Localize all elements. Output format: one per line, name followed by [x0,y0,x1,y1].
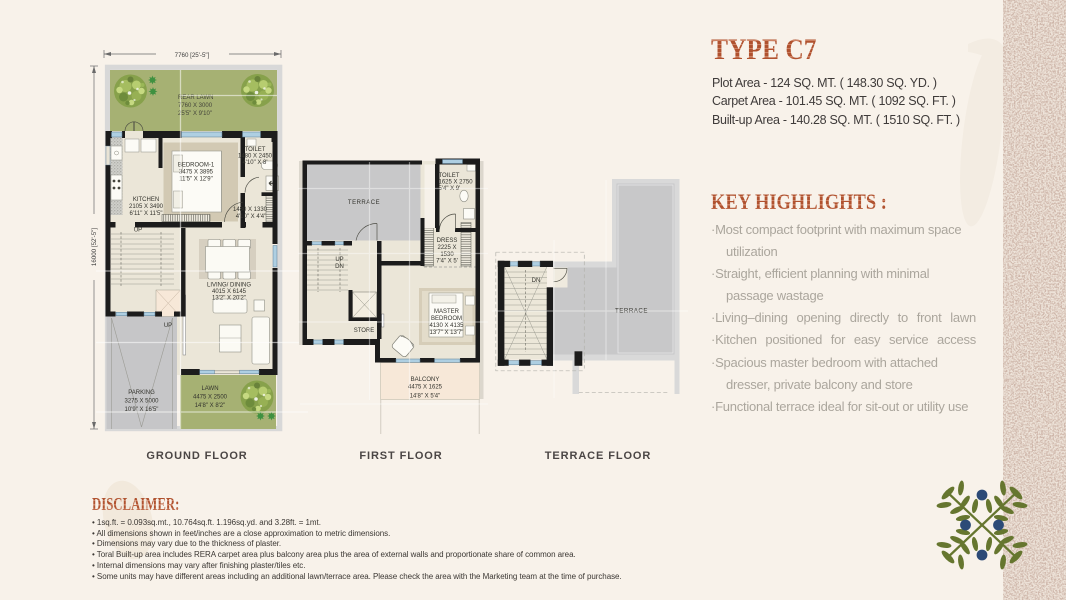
svg-text:1480 X 2450: 1480 X 2450 [238,154,273,160]
svg-text:13'7" X 13'7": 13'7" X 13'7" [430,330,464,336]
svg-text:6'11" X 11'5": 6'11" X 11'5" [129,211,162,217]
svg-text:BEDROOM-1: BEDROOM-1 [178,163,215,169]
svg-text:UP: UP [134,228,142,234]
svg-text:3275 X 5000: 3275 X 5000 [124,399,159,405]
svg-text:DN: DN [335,264,344,270]
svg-text:1625 X 2750: 1625 X 2750 [439,180,474,186]
svg-text:TOILET: TOILET [245,147,266,153]
svg-text:3475 X 3895: 3475 X 3895 [179,170,214,176]
svg-text:STORE: STORE [354,328,375,334]
svg-text:2225 X: 2225 X [437,245,456,251]
svg-text:4475 X 1625: 4475 X 1625 [408,385,443,391]
svg-text:UP: UP [164,323,172,329]
svg-text:25'5" X 9'10": 25'5" X 9'10" [178,111,212,117]
svg-text:LIVING/ DINING: LIVING/ DINING [207,283,251,289]
svg-text:LAWN: LAWN [201,386,218,392]
svg-text:14'8" X 8'2": 14'8" X 8'2" [195,403,226,409]
svg-text:13'2" X 20'2": 13'2" X 20'2" [212,296,246,302]
svg-text:BEDROOM: BEDROOM [431,316,462,322]
svg-text:1480 X 1330: 1480 X 1330 [233,207,268,213]
svg-text:14'8" X 5'4": 14'8" X 5'4" [410,394,441,400]
svg-text:BALCONY: BALCONY [411,377,440,383]
svg-text:TERRACE: TERRACE [348,200,380,206]
svg-text:16000 [52'-5"]: 16000 [52'-5"] [91,228,98,266]
svg-text:4015 X 6145: 4015 X 6145 [212,289,247,295]
svg-text:4'10" X 4'4": 4'10" X 4'4" [236,214,267,220]
svg-text:4475 X 2500: 4475 X 2500 [193,395,228,401]
svg-text:PARKING: PARKING [128,390,155,396]
svg-text:7760 X 3000: 7760 X 3000 [178,103,213,109]
svg-text:DN: DN [532,278,541,284]
svg-text:4'10" X 8': 4'10" X 8' [242,160,267,166]
svg-text:4130 X 4135: 4130 X 4135 [429,323,464,329]
svg-text:7'4" X 5': 7'4" X 5' [436,259,458,265]
svg-text:11'5" X 12'9": 11'5" X 12'9" [179,177,212,183]
svg-text:7760 [25'-5"]: 7760 [25'-5"] [175,52,210,59]
svg-text:DRESS: DRESS [437,238,458,244]
svg-text:MASTER: MASTER [434,309,460,315]
svg-text:UP: UP [335,257,343,263]
svg-text:KITCHEN: KITCHEN [133,197,159,203]
svg-text:TOILET: TOILET [439,173,460,179]
svg-text:2105 X 3490: 2105 X 3490 [129,204,164,210]
